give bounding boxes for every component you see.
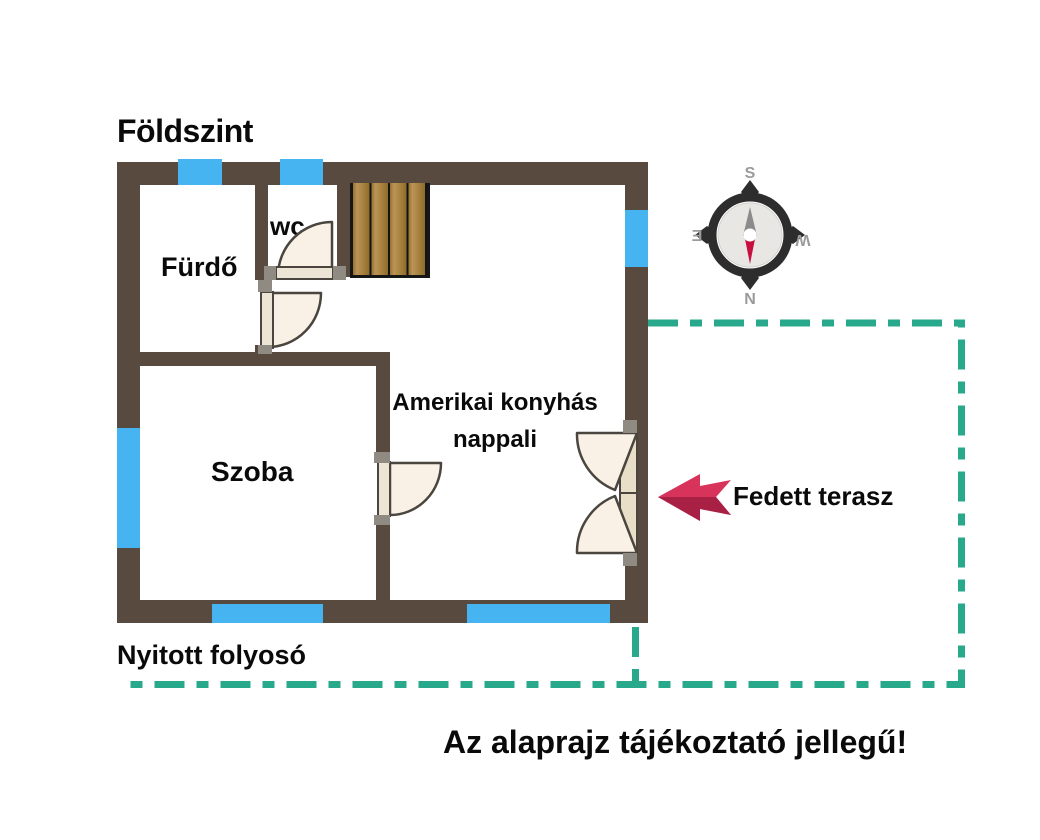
compass-label-top: S: [745, 165, 756, 182]
bedroom-door-leaf: [378, 462, 390, 516]
bathroom-door-swing-icon: [268, 293, 321, 347]
window-right-living: [625, 210, 648, 267]
compass-needle-south: [743, 207, 757, 236]
room-label-living: Amerikai konyhás nappali: [385, 384, 605, 458]
compass-label-left: E: [691, 228, 702, 245]
window-top-wc: [280, 159, 323, 185]
terrace-arrow-body: [658, 474, 731, 521]
window-bottom-bedroom: [212, 604, 323, 623]
room-label-living-line2: nappali: [385, 421, 605, 458]
compass-point-right: [781, 226, 805, 244]
wall-bedroom-top: [140, 352, 390, 366]
wall-left: [117, 162, 140, 623]
wall-bathroom-right: [255, 185, 268, 280]
terrace-arrow-shading: [658, 497, 731, 521]
bedroom-door-swing-icon: [390, 463, 441, 515]
page-title: Földszint: [117, 113, 253, 150]
terrace-arrow-icon: [658, 474, 731, 521]
wc-door-leaf: [276, 267, 333, 279]
room-label-bathroom: Fürdő: [161, 253, 237, 281]
window-top-bathroom: [178, 159, 222, 185]
compass-rose-icon: S N E W: [691, 165, 810, 308]
bedroom-door-jamb-bottom: [374, 515, 390, 525]
compass-hub: [744, 229, 757, 242]
terrace-label: Fedett terasz: [733, 483, 893, 510]
compass-point-left: [695, 226, 719, 244]
stairs-icon: [350, 183, 430, 278]
room-label-living-line1: Amerikai konyhás: [385, 384, 605, 421]
disclaimer-text: Az alaprajz tájékoztató jellegű!: [443, 726, 907, 760]
compass-point-top: [741, 180, 759, 204]
wall-bedroom-right-lower: [376, 525, 390, 600]
compass-needle-north: [744, 234, 756, 264]
room-label-wc: wc: [270, 213, 305, 240]
floor-plan-page: Földszint Fürdő wc Szoba Amerikai konyhá…: [0, 0, 1040, 840]
wall-wc-right: [337, 185, 350, 277]
bathroom-door-jamb-top: [258, 280, 272, 292]
compass-point-bottom: [741, 266, 759, 290]
bathroom-door-leaf: [261, 292, 273, 348]
window-left-bedroom: [117, 428, 140, 548]
compass-label-bottom: N: [744, 291, 756, 308]
compass-label-right: W: [795, 231, 811, 248]
window-bottom-living: [467, 604, 610, 623]
compass-face: [718, 203, 782, 267]
corridor-label: Nyitott folyosó: [117, 641, 306, 669]
compass-ring: [712, 197, 788, 273]
room-label-bedroom: Szoba: [211, 457, 293, 486]
